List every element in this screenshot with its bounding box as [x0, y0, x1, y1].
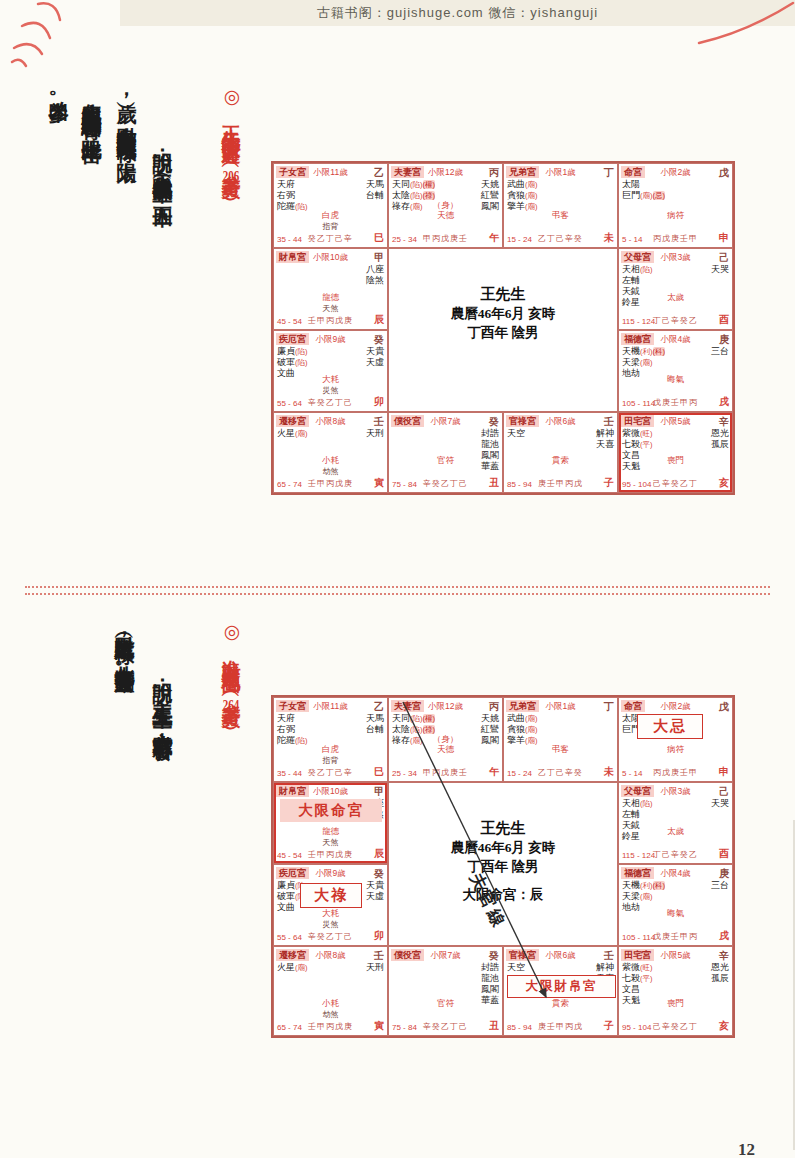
star-name: 武曲 — [507, 713, 525, 723]
suiqian-star: 大耗 — [274, 908, 387, 918]
palace-cell-shen: 命宮小限2歲戊太陽巨門(廟)(忌)病符5 - 14丙戊庚壬甲申 — [618, 163, 733, 248]
stars-right: 恩光孤辰 — [711, 962, 729, 984]
star-hua: (科) — [653, 881, 666, 890]
year-stems: 甲丙戊庚壬 — [389, 767, 502, 778]
star-name: 七殺 — [622, 439, 640, 449]
star-hua: (科) — [653, 347, 666, 356]
palace-stem: 甲 — [374, 785, 384, 799]
birth-year-gender: 丁酉年 陰男 — [389, 323, 617, 342]
section1-paragraph-col4: 凶參半。 — [46, 85, 73, 285]
section2-page-ref: 264 — [223, 697, 239, 712]
year-stems: 辛癸乙丁己 — [274, 931, 387, 942]
branch-label: 戌 — [719, 929, 729, 943]
star-name: 天相 — [622, 798, 640, 808]
star-brightness: (旺) — [640, 429, 653, 438]
palace-name: 夫妻宮 — [391, 700, 424, 712]
stars-left: 紫微(旺)七殺(平)文昌天魁 — [622, 428, 653, 472]
star-name: 紅鸞 — [481, 724, 499, 734]
star-name: 解神 — [596, 428, 614, 438]
palace-cell-wei: 兄弟宮小限1歲丁武曲(廟)貪狼(廟)擎羊(廟)弔客15 - 24乙丁己辛癸未 — [503, 697, 618, 782]
star-line: 右弼 — [277, 724, 308, 735]
star-name: 恩光 — [711, 962, 729, 972]
section-divider — [25, 586, 770, 595]
branch-label: 巳 — [374, 765, 384, 779]
branch-label: 巳 — [374, 231, 384, 245]
palace-stem: 癸 — [374, 867, 384, 881]
star-line: 三台 — [711, 346, 729, 357]
suiqian-star: （身）天德 — [389, 200, 502, 220]
header-bar: 古籍书阁：gujishuge.com 微信：yishanguji — [120, 0, 795, 26]
daxian-mingong-box: 大限命宮 — [280, 799, 382, 822]
section2-title-text: ◎進財大運地圖：（參考頁 — [221, 620, 242, 697]
xiaoxian-label: 小限5歲 — [660, 415, 690, 427]
palace-stem: 壬 — [604, 949, 614, 963]
star-line: 天貴 — [366, 346, 384, 357]
star-brightness: (旺) — [640, 963, 653, 972]
palace-name: 疾厄宮 — [276, 333, 309, 345]
daxian-chart-lower: 子女宮小限11歲乙天府右弼陀羅(陷)天馬台輔白虎指背35 - 44癸乙丁己辛巳夫… — [271, 695, 735, 1038]
jiangqian-star: 災煞 — [274, 386, 387, 395]
jiangqian-star: 天煞 — [274, 838, 387, 847]
stars-left: 天空 — [507, 428, 525, 439]
suiqian-star: 小耗 — [274, 455, 387, 465]
star-name: 七殺 — [622, 973, 640, 983]
star-brightness: (陷) — [640, 265, 653, 274]
star-name: 貪狼 — [507, 190, 525, 200]
star-line: 天相(陷) — [622, 264, 653, 275]
star-line: 台輔 — [366, 190, 384, 201]
stars-right: 封誥龍池鳳閣華蓋 — [481, 428, 499, 472]
xiaoxian-label: 小限4歲 — [660, 333, 690, 345]
palace-stem: 癸 — [489, 415, 499, 429]
star-line: 文昌 — [622, 984, 653, 995]
palace-cell-shen: 命宮小限2歲戊太陽巨門(廟)(忌)病符5 - 14丙戊庚壬甲申大忌 — [618, 697, 733, 782]
year-stems: 甲丙戊庚壬 — [389, 233, 502, 244]
star-line: 天機(利)(科) — [622, 346, 665, 357]
palace-name: 父母宮 — [621, 251, 654, 263]
body-palace-marker: （身） — [389, 200, 502, 210]
star-line: 紫微(旺) — [622, 962, 653, 973]
star-name: 天梁 — [622, 357, 640, 367]
star-name: 天虛 — [366, 891, 384, 901]
star-line: 天空 — [507, 428, 525, 439]
star-name: 天同 — [392, 713, 410, 723]
star-name: 天刑 — [366, 428, 384, 438]
palace-cell-you: 父母宮小限3歲己天相(陷)左輔天鉞鈴星天哭太歲115 - 124丁己辛癸乙酉 — [618, 782, 733, 864]
palace-name: 官祿宮 — [506, 415, 539, 427]
palace-stem: 甲 — [374, 251, 384, 265]
palace-name: 僕役宮 — [391, 415, 424, 427]
birth-year-gender: 丁酉年 陰男 — [389, 857, 617, 876]
star-line: 解神 — [596, 962, 614, 973]
palace-cell-wu: 夫妻宮小限12歲丙天同(陷)(權)太陰(陷)(祿)祿存(廟)天姚紅鸞鳳閣（身）天… — [388, 697, 503, 782]
stars-right: 天馬台輔 — [366, 179, 384, 201]
star-hua: (祿) — [423, 725, 436, 734]
star-line: 天哭 — [711, 264, 729, 275]
star-name: 紅鸞 — [481, 190, 499, 200]
star-name: 天貴 — [366, 346, 384, 356]
stars-right: 解神天喜 — [596, 428, 614, 450]
star-line: 天虛 — [366, 891, 384, 902]
palace-stem: 己 — [719, 785, 729, 799]
jiangqian-star: 指背 — [274, 756, 387, 765]
star-name: 天梁 — [622, 891, 640, 901]
suiqian-star: 龍德 — [274, 292, 387, 302]
branch-label: 寅 — [374, 1019, 384, 1033]
palace-cell-wei: 兄弟宮小限1歲丁武曲(廟)貪狼(廟)擎羊(廟)弔客15 - 24乙丁己辛癸未 — [503, 163, 618, 248]
corner-doodle-top-left-icon — [10, 0, 85, 80]
star-name: 太陽 — [622, 179, 640, 189]
suiqian-star: 晦氣 — [619, 374, 732, 384]
star-line: 破軍(陷) — [277, 357, 308, 368]
star-line: 八座 — [366, 264, 384, 275]
section1-paragraph-col3: 化大忌巨門化忌入大限夫官線相脅，此限十年吉 — [79, 88, 106, 558]
star-line: 天哭 — [711, 798, 729, 809]
suiqian-star: 弔客 — [504, 744, 617, 754]
stars-left: 火星(廟) — [277, 428, 308, 439]
branch-label: 酉 — [719, 313, 729, 327]
star-name: 龍池 — [481, 439, 499, 449]
star-line: 武曲(廟) — [507, 713, 538, 724]
suiqian-star: 官符 — [389, 455, 502, 465]
star-line: 火星(廟) — [277, 428, 308, 439]
year-stems: 己辛癸乙丁 — [619, 1021, 732, 1032]
section1-title-text: ◎王先生的後天財運：（參考頁 — [221, 85, 242, 168]
star-brightness: (陷) — [410, 191, 423, 200]
star-line: 三台 — [711, 880, 729, 891]
star-name: 天虛 — [366, 357, 384, 367]
daji-box: 大忌 — [637, 714, 703, 739]
star-brightness: (陷) — [410, 714, 423, 723]
star-line: 龍池 — [481, 439, 499, 450]
palace-stem: 己 — [719, 251, 729, 265]
book-page: { "page": { "header_text": "古籍书阁：gujishu… — [0, 0, 795, 1158]
star-name: 左輔 — [622, 275, 640, 285]
palace-name: 夫妻宮 — [391, 166, 424, 178]
branch-label: 戌 — [719, 395, 729, 409]
year-stems: 丁己辛癸乙 — [619, 315, 732, 326]
header-text: 古籍书阁：gujishuge.com 微信：yishanguji — [317, 5, 598, 20]
star-line: 恩光 — [711, 962, 729, 973]
star-name: 天哭 — [711, 264, 729, 274]
year-stems: 丙戊庚壬甲 — [619, 767, 732, 778]
year-stems: 庚壬甲丙戊 — [504, 478, 617, 489]
suiqian-star: 貫索 — [504, 455, 617, 465]
star-line: 天機(利)(科) — [622, 880, 665, 891]
palace-stem: 壬 — [604, 415, 614, 429]
branch-label: 申 — [719, 231, 729, 245]
palace-stem: 丙 — [489, 700, 499, 714]
year-stems: 戊庚壬甲丙 — [619, 931, 732, 942]
xiaoxian-label: 小限8歲 — [315, 415, 345, 427]
xiaoxian-label: 小限6歲 — [545, 949, 575, 961]
star-name: 天同 — [392, 179, 410, 189]
palace-cell-zi: 官祿宮小限6歲壬天空解神天喜貫索85 - 94庚壬甲丙戊子大限財帛宮 — [503, 946, 618, 1036]
section1-page-ref: 206 — [223, 168, 239, 183]
star-name: 天貴 — [366, 880, 384, 890]
daxian-caibo-box: 大限財帛宮 — [507, 975, 616, 998]
palace-stem: 戊 — [719, 166, 729, 180]
star-name: 天喜 — [596, 439, 614, 449]
palace-name: 遷移宮 — [276, 415, 309, 427]
star-name: 天馬 — [366, 179, 384, 189]
suiqian-star: 病符 — [619, 210, 732, 220]
xiaoxian-label: 小限2歲 — [660, 700, 690, 712]
star-line: 右弼 — [277, 190, 308, 201]
suiqian-star: 喪門 — [619, 998, 732, 1008]
xiaoxian-label: 小限11歲 — [313, 700, 347, 712]
palace-cell-you: 父母宮小限3歲己天相(陷)左輔天鉞鈴星天哭太歲115 - 124丁己辛癸乙酉 — [618, 248, 733, 330]
star-line: 天同(陷)(權) — [392, 713, 435, 724]
star-brightness: (陷) — [410, 725, 423, 734]
stars-left: 武曲(廟)貪狼(廟)擎羊(廟) — [507, 179, 538, 212]
palace-stem: 庚 — [719, 867, 729, 881]
palace-name: 田宅宮 — [621, 949, 654, 961]
star-name: 天哭 — [711, 798, 729, 808]
year-stems: 辛癸乙丁己 — [389, 1021, 502, 1032]
star-name: 破軍 — [277, 891, 295, 901]
year-stems: 乙丁己辛癸 — [504, 233, 617, 244]
xiaoxian-label: 小限8歲 — [315, 949, 345, 961]
star-line: 台輔 — [366, 724, 384, 735]
palace-stem: 癸 — [489, 949, 499, 963]
palace-name: 福德宮 — [621, 867, 654, 879]
year-stems: 壬甲丙戊庚 — [274, 849, 387, 860]
stars-right: 天哭 — [711, 798, 729, 809]
palace-name: 父母宮 — [621, 785, 654, 797]
star-line: 封誥 — [481, 428, 499, 439]
star-name: 武曲 — [507, 179, 525, 189]
palace-name: 兄弟宮 — [506, 700, 539, 712]
star-line: 左輔 — [622, 275, 653, 286]
year-stems: 辛癸乙丁己 — [274, 397, 387, 408]
star-brightness: (廟) — [525, 725, 538, 734]
star-name: 破軍 — [277, 357, 295, 367]
branch-label: 卯 — [374, 395, 384, 409]
palace-cell-chen: 財帛宮小限10歲甲八座陰煞龍德天煞45 - 54壬甲丙戊庚辰 — [273, 248, 388, 330]
branch-label: 申 — [719, 765, 729, 779]
chart-center-info: 王先生農曆46年6月 亥時丁酉年 陰男大限命宮：辰 — [389, 818, 617, 904]
star-name: 太陰 — [392, 724, 410, 734]
suiqian-star: 弔客 — [504, 210, 617, 220]
star-line: 解神 — [596, 428, 614, 439]
star-line: 天刑 — [366, 962, 384, 973]
star-name: 天刑 — [366, 962, 384, 972]
star-brightness: (廟) — [295, 963, 308, 972]
star-hua: (權) — [423, 714, 436, 723]
star-line: 天空 — [507, 962, 525, 973]
stars-right: 恩光孤辰 — [711, 428, 729, 450]
palace-name: 子女宮 — [276, 700, 309, 712]
star-name: 天府 — [277, 179, 295, 189]
star-brightness: (陷) — [640, 799, 653, 808]
branch-label: 酉 — [719, 847, 729, 861]
section2-title: ◎進財大運地圖：（參考頁264） — [218, 620, 244, 1040]
page-number: 12 — [738, 1140, 755, 1158]
branch-label: 未 — [604, 765, 614, 779]
star-line: 貪狼(廟) — [507, 724, 538, 735]
star-name: 天相 — [622, 264, 640, 274]
palace-stem: 乙 — [374, 166, 384, 180]
xiaoxian-label: 小限5歲 — [660, 949, 690, 961]
stars-left: 天府右弼陀羅(陷) — [277, 179, 308, 212]
star-hua: (忌) — [653, 191, 666, 200]
star-name: 紫微 — [622, 962, 640, 972]
suiqian-star: 病符 — [619, 744, 732, 754]
suiqian-star: 官符 — [389, 998, 502, 1008]
star-line: 天相(陷) — [622, 798, 653, 809]
xiaoxian-label: 小限12歲 — [428, 700, 463, 712]
branch-label: 辰 — [374, 847, 384, 861]
star-name: 火星 — [277, 428, 295, 438]
palace-name: 疾厄宮 — [276, 867, 309, 879]
xiaoxian-label: 小限6歲 — [545, 415, 575, 427]
star-name: 三台 — [711, 346, 729, 356]
suiqian-star: 太歲 — [619, 292, 732, 302]
palace-stem: 辛 — [719, 949, 729, 963]
branch-label: 亥 — [719, 476, 729, 490]
palace-stem: 乙 — [374, 700, 384, 714]
palace-name: 兄弟宮 — [506, 166, 539, 178]
star-line: 孤辰 — [711, 439, 729, 450]
star-line: 鳳閣 — [481, 984, 499, 995]
star-name: 廉貞 — [277, 346, 295, 356]
suiqian-star: 太歲 — [619, 826, 732, 836]
star-line: 天府 — [277, 179, 308, 190]
palace-name: 官祿宮 — [506, 949, 539, 961]
section1-paragraph-col2: 歲），財帛宮無主星借對宮天同太陰化祿，太陽 — [114, 88, 141, 558]
palace-cell-xu: 福德宮小限4歲庚天機(利)(科)天梁(廟)地劫三台晦氣105 - 114戊庚壬甲… — [618, 864, 733, 946]
star-line: 陰煞 — [366, 275, 384, 286]
star-line: 七殺(平) — [622, 439, 653, 450]
palace-stem: 丁 — [604, 166, 614, 180]
year-stems: 丁己辛癸乙 — [619, 849, 732, 860]
xiaoxian-label: 小限4歲 — [660, 867, 690, 879]
year-stems: 乙丁己辛癸 — [504, 767, 617, 778]
palace-name: 財帛宮 — [276, 785, 309, 797]
palace-cell-xu: 福德宮小限4歲庚天機(利)(科)天梁(廟)地劫三台晦氣105 - 114戊庚壬甲… — [618, 330, 733, 412]
star-name: 台輔 — [366, 190, 384, 200]
star-brightness: (陷) — [295, 358, 308, 367]
suiqian-star: 喪門 — [619, 455, 732, 465]
palace-stem: 丙 — [489, 166, 499, 180]
stars-right: 八座陰煞 — [366, 264, 384, 286]
stars-right: 三台 — [711, 880, 729, 891]
year-stems: 己辛癸乙丁 — [619, 478, 732, 489]
palace-cell-yin: 遷移宮小限8歲壬火星(廟)天刑小耗劫煞65 - 74壬甲丙戊庚寅 — [273, 412, 388, 493]
star-name: 文昌 — [622, 984, 640, 994]
star-brightness: (廟) — [525, 180, 538, 189]
star-line: 封誥 — [481, 962, 499, 973]
star-line: 巨門(廟)(忌) — [622, 190, 665, 201]
suiqian-star: 晦氣 — [619, 908, 732, 918]
star-line: 天喜 — [596, 439, 614, 450]
star-line: 恩光 — [711, 428, 729, 439]
branch-label: 丑 — [489, 1019, 499, 1033]
star-line: 七殺(平) — [622, 973, 653, 984]
year-stems: 癸乙丁己辛 — [274, 767, 387, 778]
star-brightness: (廟) — [525, 714, 538, 723]
palace-cell-zi: 官祿宮小限6歲壬天空解神天喜貫索85 - 94庚壬甲丙戊子 — [503, 412, 618, 493]
year-stems: 壬甲丙戊庚 — [274, 315, 387, 326]
section2-paragraph-col2: 財星太陰星（本祿），此十年有發財靈動。 — [112, 620, 139, 1050]
branch-label: 寅 — [374, 476, 384, 490]
star-name: 紫微 — [622, 428, 640, 438]
star-name: 鳳閣 — [481, 984, 499, 994]
star-line: 左輔 — [622, 809, 653, 820]
star-name: 三台 — [711, 880, 729, 890]
palace-cell-si: 子女宮小限11歲乙天府右弼陀羅(陷)天馬台輔白虎指背35 - 44癸乙丁己辛巳 — [273, 697, 388, 782]
branch-label: 亥 — [719, 1019, 729, 1033]
stars-left: 火星(廟) — [277, 962, 308, 973]
xiaoxian-label: 小限10歲 — [313, 251, 348, 263]
star-name: 太陰 — [392, 190, 410, 200]
jiangqian-star: 指背 — [274, 222, 387, 231]
palace-name: 財帛宮 — [276, 251, 309, 263]
star-line: 廉貞(陷) — [277, 346, 308, 357]
star-brightness: (廟) — [295, 429, 308, 438]
xiaoxian-label: 小限9歲 — [315, 867, 345, 879]
star-brightness: (廟) — [640, 892, 653, 901]
year-stems: 壬甲丙戊庚 — [274, 1021, 387, 1032]
star-line: 天同(陷)(權) — [392, 179, 435, 190]
palace-cell-si: 子女宮小限11歲乙天府右弼陀羅(陷)天馬台輔白虎指背35 - 44癸乙丁己辛巳 — [273, 163, 388, 248]
star-name: 火星 — [277, 962, 295, 972]
star-name: 右弼 — [277, 190, 295, 200]
section1-title: ◎王先生的後天財運：（參考頁206） — [218, 85, 244, 565]
jiangqian-star: 災煞 — [274, 920, 387, 929]
star-name: 封誥 — [481, 962, 499, 972]
star-name: 廉貞 — [277, 880, 295, 890]
star-name: 陰煞 — [366, 275, 384, 285]
person-name: 王先生 — [389, 284, 617, 304]
body-palace-marker: （身） — [389, 734, 502, 744]
palace-name: 子女宮 — [276, 166, 309, 178]
star-brightness: (廟) — [640, 358, 653, 367]
star-brightness: (利) — [640, 881, 653, 890]
jiangqian-star: 劫煞 — [274, 467, 387, 476]
branch-label: 午 — [489, 231, 499, 245]
star-name: 天姚 — [481, 713, 499, 723]
palace-cell-hai: 田宅宮小限5歲辛紫微(旺)七殺(平)文昌天魁恩光孤辰喪門95 - 104己辛癸乙… — [618, 946, 733, 1036]
palace-name: 命宮 — [621, 700, 645, 712]
branch-label: 卯 — [374, 929, 384, 943]
star-name: 天姚 — [481, 179, 499, 189]
palace-cell-wu: 夫妻宮小限12歲丙天同(陷)(權)太陰(陷)(祿)祿存(廟)天姚紅鸞鳳閣（身）天… — [388, 163, 503, 248]
star-line: 火星(廟) — [277, 962, 308, 973]
palace-stem: 癸 — [374, 333, 384, 347]
star-name: 孤辰 — [711, 973, 729, 983]
star-line: 天府 — [277, 713, 308, 724]
xiaoxian-label: 小限9歲 — [315, 333, 345, 345]
star-line: 天梁(廟) — [622, 357, 665, 368]
star-brightness: (陷) — [295, 347, 308, 356]
star-line: 天虛 — [366, 357, 384, 368]
chart-center-info: 王先生農曆46年6月 亥時丁酉年 陰男 — [389, 284, 617, 342]
star-line: 孤辰 — [711, 973, 729, 984]
xiaoxian-label: 小限7歲 — [430, 415, 460, 427]
palace-stem: 丁 — [604, 700, 614, 714]
star-name: 左輔 — [622, 809, 640, 819]
star-line: 天馬 — [366, 179, 384, 190]
year-stems: 辛癸乙丁己 — [389, 478, 502, 489]
dalu-box: 大祿 — [300, 883, 362, 908]
xiaoxian-label: 小限3歲 — [660, 251, 690, 263]
star-line: 貪狼(廟) — [507, 190, 538, 201]
year-stems: 戊庚壬甲丙 — [619, 397, 732, 408]
stars-right: 天貴天虛 — [366, 346, 384, 368]
star-name: 天空 — [507, 962, 525, 972]
